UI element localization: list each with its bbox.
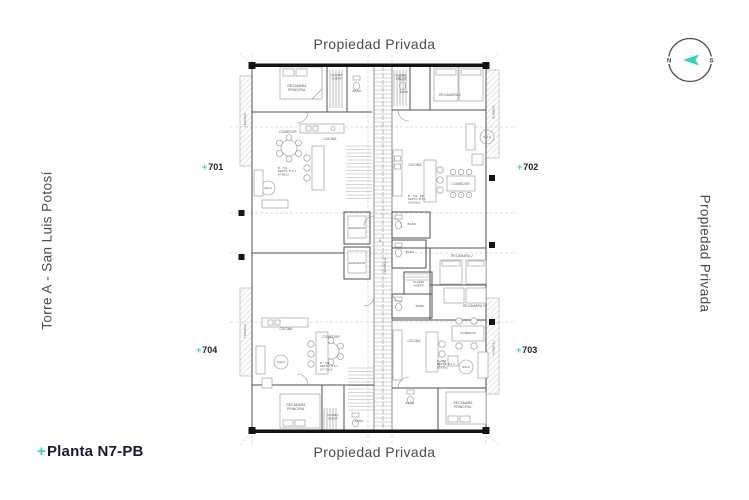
room-label: N7 bbox=[378, 238, 382, 242]
room-label: COMEDOR bbox=[460, 331, 475, 335]
room-label: COCINA bbox=[323, 137, 337, 141]
room-label: BAÑO bbox=[406, 249, 415, 254]
room-label: SALA bbox=[264, 186, 272, 190]
room-label: BAÑO bbox=[400, 89, 409, 94]
room-label: COMEDOR bbox=[279, 130, 297, 134]
room-label: SALA bbox=[462, 365, 470, 369]
room-label: B - 702 - PBDEPTO. B 5.1106.00m2 bbox=[408, 194, 426, 204]
central-corridor bbox=[374, 66, 392, 432]
room-label: COCINA bbox=[408, 163, 422, 167]
room-label: COMEDOR bbox=[452, 182, 470, 186]
room-label: RECÁMARAPRINCIPAL bbox=[453, 401, 473, 409]
room-label: SALA bbox=[483, 135, 491, 139]
room-label: CLOSETHUÉSP. bbox=[395, 73, 407, 80]
room-label: RECÁMARA 3 bbox=[463, 304, 485, 308]
stair-treads bbox=[346, 70, 392, 426]
room-label: BAÑO bbox=[406, 400, 415, 405]
room-label: TERRAZA bbox=[492, 341, 496, 355]
room-label: BAÑO bbox=[408, 221, 417, 226]
room-label: RECÁMARAPRINCIPAL bbox=[286, 403, 306, 411]
room-label: B - 701DEPTO. B 2.487.80m2 bbox=[278, 166, 296, 176]
room-label: CLOSETHUÉSP. bbox=[331, 73, 343, 80]
room-label: TERRAZA bbox=[243, 113, 247, 127]
room-label: RECÁMARA 2 bbox=[439, 93, 461, 97]
room-label: RECÁMARAPRINCIPAL bbox=[287, 84, 307, 92]
room-label: BAÑO bbox=[355, 418, 364, 423]
room-label: SALA bbox=[277, 360, 285, 364]
room-label: BAÑO bbox=[353, 88, 362, 93]
room-label: COCINA bbox=[407, 339, 421, 343]
floor-plan-page: Propiedad Privada Propiedad Privada Torr… bbox=[0, 0, 749, 500]
room-label: RECÁMARA 2 bbox=[451, 254, 473, 258]
walls bbox=[252, 66, 486, 432]
room-label: COCINA bbox=[279, 327, 293, 331]
room-label: CLOSETHUÉSP. bbox=[327, 413, 339, 420]
room-label: ELEVADOR bbox=[349, 261, 365, 265]
room-label: COMEDOR bbox=[322, 335, 340, 339]
floor-plan-drawing: RECÁMARAPRINCIPALCLOSETHUÉSP.BAÑOCOMEDOR… bbox=[0, 0, 749, 500]
room-label: ELEVADOR bbox=[349, 226, 365, 230]
room-label: VESTÍBULO bbox=[383, 258, 387, 274]
room-label: B - 704DEPTO. B 6.1107.22m2 bbox=[320, 361, 338, 371]
room-label: BAÑO bbox=[416, 303, 425, 308]
room-label: TERRAZA bbox=[492, 105, 496, 119]
room-label: TERRAZA bbox=[243, 324, 247, 338]
room-label: CLOSETHUÉSP. bbox=[413, 280, 425, 287]
